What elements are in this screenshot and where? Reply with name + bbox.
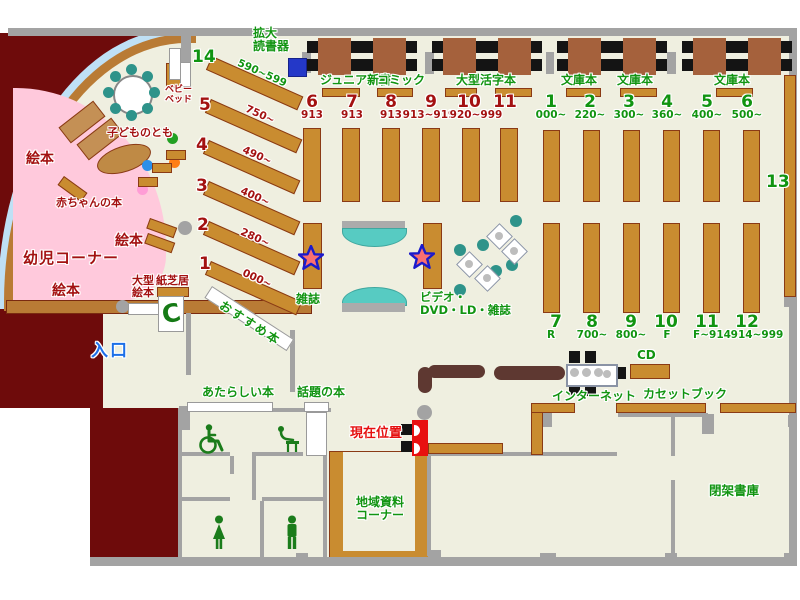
chair (557, 41, 568, 53)
service-counter-l (418, 367, 432, 393)
reading-table (623, 38, 656, 75)
internet-seat (582, 368, 591, 377)
bookshelf (630, 364, 670, 379)
chair (406, 59, 417, 71)
chair (307, 41, 318, 53)
video-label-l2: DVD・LD・雑誌 (420, 304, 511, 317)
chair (601, 59, 612, 71)
picture-books-label: 絵本 (115, 234, 143, 250)
seat-dot (149, 87, 160, 98)
wall (230, 456, 234, 474)
bookshelf (462, 128, 480, 202)
baby-changing-icon (275, 424, 301, 456)
baby-bed-label: ベビー ベッド (165, 85, 192, 105)
chair (531, 59, 542, 71)
bookshelf (500, 128, 518, 202)
picture-books-label: 絵本 (52, 284, 80, 300)
diag-shelf-number: 5 (199, 96, 211, 115)
chair (487, 59, 498, 71)
wall (262, 497, 327, 501)
reading-table (443, 38, 476, 75)
bookshelf (720, 403, 796, 413)
dark-red-block-left (0, 310, 103, 408)
star-marker-icon (298, 245, 324, 270)
chair (432, 59, 443, 71)
video-label-l1: ビデオ・ (420, 291, 511, 304)
chair (726, 41, 737, 53)
right-top-col-range: 400~ (685, 110, 729, 122)
kodomo-no-tomo-label: 子どものとも (107, 127, 173, 139)
reading-table (748, 38, 781, 75)
chair (557, 59, 568, 71)
shelf-13-label: 13 (766, 173, 790, 192)
wall (784, 553, 796, 565)
marker-chair (401, 424, 412, 435)
toddler-corner-label: 幼児コーナー (23, 250, 119, 267)
reading-table (498, 38, 531, 75)
man-icon (283, 515, 301, 553)
closed-stacks-label: 閉架書庫 (709, 484, 759, 498)
right-top-col-range: 000~ (529, 110, 573, 122)
bookshelf (543, 223, 560, 313)
chair (476, 41, 487, 53)
bookshelf (743, 130, 760, 202)
wall (788, 415, 797, 427)
reading-table (693, 38, 726, 75)
internet-seat (594, 368, 603, 377)
woman-icon (210, 515, 228, 553)
bunko-label: 文庫本 (561, 74, 597, 87)
center-col-range: 913 (332, 110, 372, 122)
chair (432, 41, 443, 53)
wall (665, 553, 677, 565)
chair (476, 59, 487, 71)
local-materials-label: 地域資料 コーナー (344, 496, 416, 523)
topical-books-label: 話題の本 (297, 386, 345, 399)
chair (737, 59, 748, 71)
seat-dot (477, 239, 489, 251)
chair (351, 41, 362, 53)
chair (307, 59, 318, 71)
chair (656, 59, 667, 71)
chair (362, 59, 373, 71)
baby-books-label: 赤ちゃんの本 (56, 197, 122, 209)
wall (296, 553, 308, 565)
bookshelf (382, 128, 400, 202)
bookshelf (663, 223, 680, 313)
comic-label: コミック (377, 74, 425, 87)
bookshelf (623, 130, 640, 202)
cassette-book-label: カセットブック (643, 388, 727, 401)
bookshelf (428, 443, 503, 454)
magnifier-label-l2: 読書器 (253, 40, 289, 53)
carrel-seat (510, 247, 518, 255)
reading-table (373, 38, 406, 75)
internet-label: インターネット (552, 390, 636, 403)
seat-dot (110, 103, 121, 114)
wall (90, 557, 797, 566)
library-floor-map: C 拡大 読書器 ジュニア新書 コミック 大型活字本 文庫本 文庫本 文庫本 雑… (0, 0, 800, 600)
large-print-label: 大型活字本 (456, 74, 516, 87)
bookshelf (663, 130, 680, 202)
internet-seat (570, 368, 579, 377)
wall (178, 497, 230, 501)
bookshelf (583, 130, 600, 202)
chair (737, 41, 748, 53)
bookshelf (703, 223, 720, 313)
reading-table (568, 38, 601, 75)
display-shelf (187, 402, 273, 412)
kids-step (152, 163, 172, 173)
cd-label: CD (637, 349, 656, 362)
chair (406, 41, 417, 53)
new-books-label: あたらしい本 (202, 386, 274, 399)
large-picture-books-l2: 絵本 (132, 287, 154, 299)
magnifier-label: 拡大 読書器 (253, 27, 289, 54)
service-counter-l (428, 365, 485, 378)
pillar (178, 221, 192, 235)
service-counter-bar (494, 366, 565, 380)
reading-table (318, 38, 351, 75)
chair (726, 59, 737, 71)
center-col-range: 913 (292, 110, 332, 122)
current-position-label: 現在位置 (350, 427, 402, 442)
bench-back (342, 303, 405, 312)
large-picture-books-label: 大型 絵本 (132, 275, 154, 300)
entrance-label: 入口 (91, 342, 129, 361)
center-col-range: 920~999 (446, 110, 506, 122)
baby-bed-label-l1: ベビー (165, 85, 192, 95)
seat-dot (454, 244, 466, 256)
wall (667, 52, 676, 74)
display-shelf (169, 48, 181, 80)
chair (351, 59, 362, 71)
diag-shelf-number: 1 (199, 255, 211, 274)
wall (618, 413, 708, 417)
right-bottom-col-range: 914~999 (729, 330, 785, 342)
seat-dot (142, 103, 153, 114)
chair (601, 41, 612, 53)
chair (781, 59, 792, 71)
wall (784, 297, 796, 307)
bunko-label: 文庫本 (617, 74, 653, 87)
right-top-col-range: 360~ (645, 110, 689, 122)
bunko-label: 文庫本 (714, 74, 750, 87)
baby-bed-label-l2: ベッド (165, 95, 192, 105)
chair (612, 41, 623, 53)
wall (252, 456, 256, 500)
carrel-seat (495, 232, 503, 240)
wall (671, 480, 675, 557)
kids-step (166, 150, 186, 160)
marker-chair (401, 441, 412, 452)
bookshelf (743, 223, 760, 313)
kids-step (138, 177, 158, 187)
display-shelf (180, 62, 191, 87)
display-shelf (304, 402, 329, 412)
seat-dot (126, 110, 137, 121)
bookshelf (703, 130, 720, 202)
chair (781, 41, 792, 53)
video-label: ビデオ・ DVD・LD・雑誌 (420, 291, 511, 317)
bookshelf (531, 403, 575, 413)
wall (428, 550, 441, 564)
diag-shelf-number: 2 (197, 216, 209, 235)
carrel-seat (483, 274, 491, 282)
seat-dot (510, 215, 522, 227)
diag-shelf-number: 4 (196, 136, 208, 155)
local-materials-l2: コーナー (344, 509, 416, 522)
bookshelf (543, 130, 560, 202)
chair (569, 351, 580, 363)
internet-seat (603, 370, 611, 378)
pillar (417, 405, 432, 420)
right-top-col-range: 500~ (725, 110, 769, 122)
bookshelf (303, 128, 321, 202)
display-shelf (128, 303, 162, 315)
bookshelf (583, 223, 600, 313)
bookshelf (422, 128, 440, 202)
wall (546, 52, 554, 74)
wall (427, 456, 431, 556)
carrel-seat (465, 260, 473, 268)
wall (178, 412, 182, 558)
seat-dot (110, 71, 121, 82)
bookshelf (616, 403, 706, 413)
wheelchair-icon (197, 424, 225, 456)
wall (671, 412, 675, 456)
chair (487, 41, 498, 53)
wall (186, 313, 191, 375)
seat-dot (142, 71, 153, 82)
wall (702, 414, 714, 434)
chair (362, 41, 373, 53)
chair (585, 351, 596, 363)
chair (531, 41, 542, 53)
dark-red-block-bottomleft (90, 408, 178, 558)
star-marker-icon (409, 244, 435, 269)
magazine-label: 雑誌 (296, 293, 320, 306)
chair (612, 59, 623, 71)
seat-dot (103, 87, 114, 98)
diag-shelf-number: 3 (196, 177, 208, 196)
kamishibai-label: 紙芝居 (156, 275, 189, 287)
wall (260, 501, 264, 557)
chair (682, 41, 693, 53)
seat-dot (126, 64, 137, 75)
diag-shelf-number: 14 (192, 48, 216, 67)
chair (682, 59, 693, 71)
wall (540, 553, 556, 565)
bookshelf (342, 128, 360, 202)
magnifier-device (288, 58, 307, 77)
display-shelf (306, 412, 327, 456)
right-top-col-range: 220~ (568, 110, 612, 122)
bookshelf (623, 223, 640, 313)
picture-books-label: 絵本 (26, 152, 54, 168)
wall (8, 28, 789, 36)
chair (656, 41, 667, 53)
